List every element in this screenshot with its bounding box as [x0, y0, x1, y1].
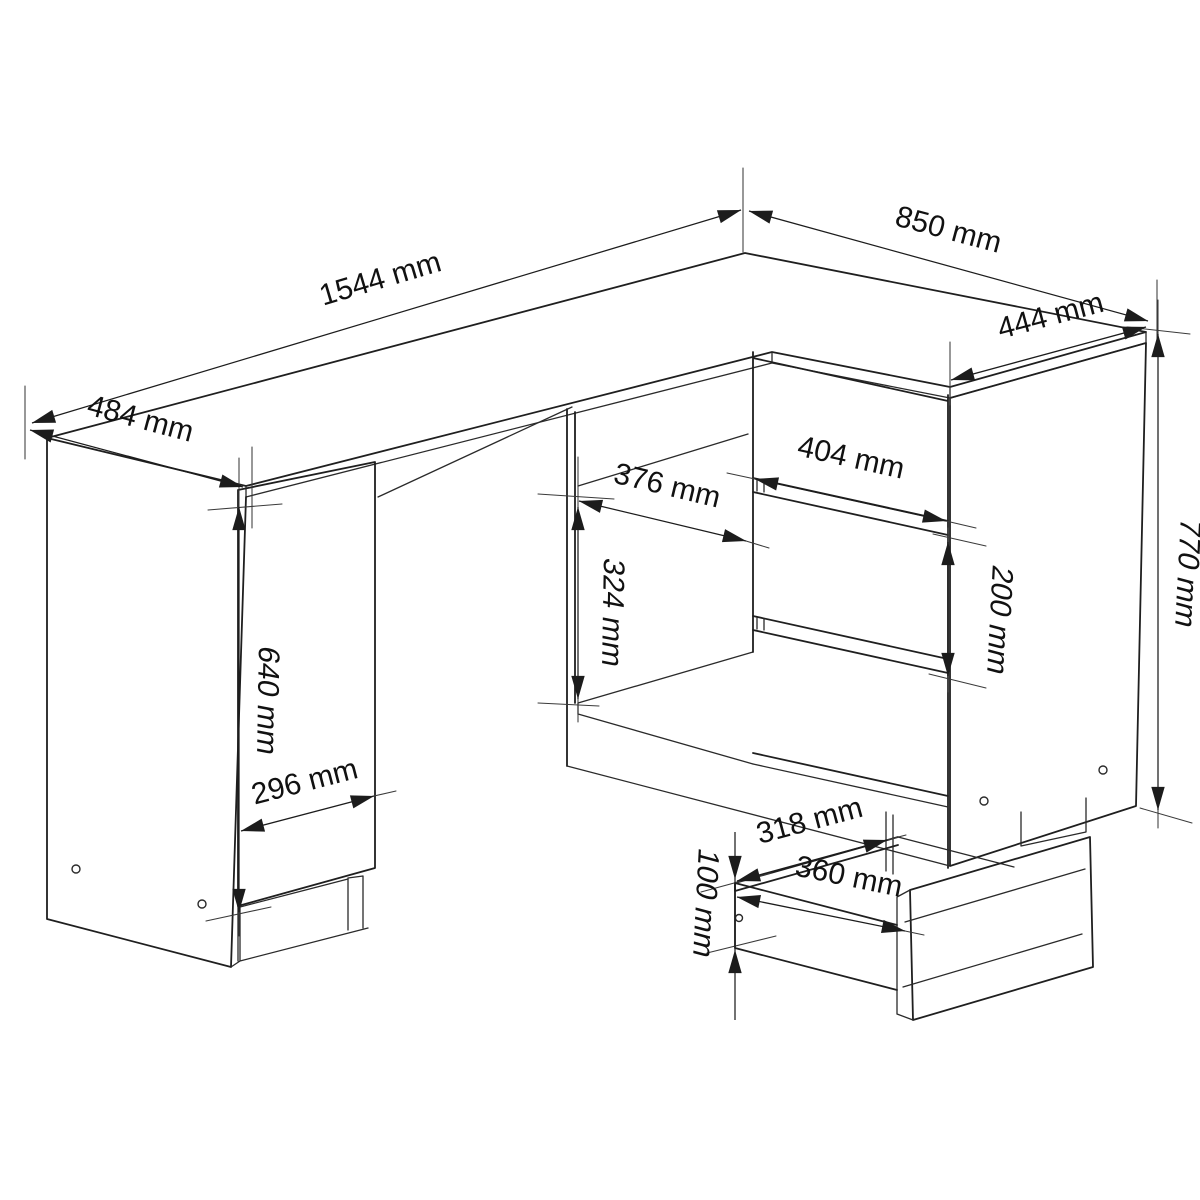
left-cabinet	[47, 438, 375, 967]
drawer-2-bottom	[753, 616, 948, 659]
drawer-3-top	[753, 630, 948, 673]
dimension-labels: 1544 mm 850 mm 444 mm 484 mm 296 mm 376 …	[84, 200, 1200, 962]
dim-label-drawer-front-width: 404 mm	[795, 430, 908, 486]
kneehole	[378, 407, 575, 766]
center-partition	[567, 409, 575, 766]
drawer-unit-corner-edges	[886, 812, 893, 874]
drawer-right-wall-rim	[898, 837, 1014, 867]
dim-label-drawer-side-height: 100 mm	[686, 845, 724, 962]
drawer-unit-frame	[753, 352, 948, 868]
dim-label-compartment-height: 324 mm	[595, 555, 630, 670]
dim-label-drawer-inner-width: 318 mm	[753, 791, 866, 851]
panel-hole	[72, 865, 80, 873]
drawer-inner-edges	[903, 869, 1085, 987]
drawer-gap-2-ticks	[757, 618, 764, 630]
left-side-panel	[47, 438, 246, 967]
drawer-gap-1-ticks	[757, 480, 764, 492]
drawer-left-wall	[735, 883, 897, 990]
drawer-wall-hole	[736, 915, 743, 922]
dim-line-drawer-inner-depth	[737, 897, 905, 931]
drawer-2-top	[753, 492, 948, 535]
desktop-edge-thickness	[246, 332, 1146, 497]
dim-label-desk-height: 770 mm	[1168, 515, 1200, 632]
dim-line-compartment-width	[579, 501, 746, 541]
dim-label-desk-length: 1544 mm	[316, 245, 445, 312]
dim-label-drawer-front-height: 200 mm	[980, 562, 1018, 679]
dim-label-door-width: 296 mm	[248, 752, 361, 811]
compartment-floor	[578, 652, 753, 764]
right-side-panel	[950, 343, 1146, 866]
dim-line-desk-depth	[30, 430, 243, 487]
pulled-out-drawer	[735, 837, 1093, 1020]
drawer-front-panel	[910, 837, 1093, 1020]
dim-line-drawer-front-width	[755, 479, 946, 521]
left-rear-leg	[348, 876, 363, 930]
dim-label-drawer-inner-depth: 360 mm	[793, 850, 906, 904]
desk-dimension-diagram: 1544 mm 850 mm 444 mm 484 mm 296 mm 376 …	[0, 0, 1200, 1200]
desktop	[47, 253, 1146, 497]
drawer-3-bottom	[753, 753, 948, 796]
right-panel-face	[950, 343, 1146, 866]
dim-label-desk-depth: 484 mm	[84, 389, 197, 449]
dim-label-compartment-width: 376 mm	[611, 457, 724, 514]
drawing-canvas: 1544 mm 850 mm 444 mm 484 mm 296 mm 376 …	[0, 0, 1200, 1200]
dim-label-return-length: 850 mm	[892, 200, 1005, 260]
dim-line-desk-length	[32, 210, 741, 423]
right-panel-leg	[1021, 798, 1086, 846]
dim-line-return-front-width	[951, 327, 1146, 380]
dim-label-return-front-width: 444 mm	[994, 286, 1107, 346]
panel-hole	[980, 797, 988, 805]
panel-hole	[198, 900, 206, 908]
panel-hole	[1099, 766, 1107, 774]
dim-label-door-height: 640 mm	[250, 643, 285, 758]
kneehole-back-edge	[378, 407, 572, 497]
